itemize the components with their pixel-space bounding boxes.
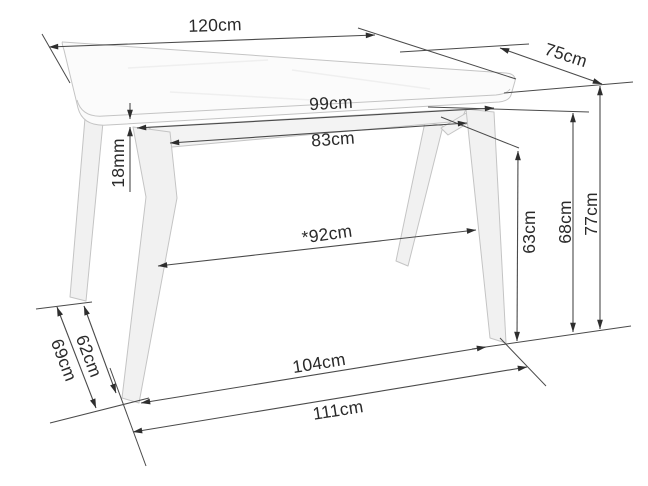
table-leg-rear-left — [70, 118, 103, 301]
dim-label-120cm: 120cm — [188, 14, 242, 36]
dim-label-104cm: 104cm — [291, 349, 347, 377]
ext-rear-left-foot — [36, 302, 92, 309]
dim-line-111 — [133, 367, 527, 432]
dim-label-63cm: 63cm — [519, 210, 539, 254]
ext-floor-left — [50, 398, 149, 423]
dim-label-68cm: 68cm — [555, 200, 575, 244]
ext-top-surface-right — [504, 82, 633, 93]
dim-label-18mm: 18mm — [108, 138, 128, 187]
dim-line-63 — [517, 151, 518, 341]
ext-leg-axis-right — [500, 338, 546, 386]
dim-label-99cm: 99cm — [309, 92, 354, 114]
dim-label-77cm: 77cm — [581, 192, 601, 236]
table-leg-rear-right — [396, 122, 443, 266]
dim-label-75cm: 75cm — [542, 39, 590, 71]
dim-label-83cm: 83cm — [311, 128, 356, 151]
dim-line-top-length — [49, 35, 375, 47]
table-drawing — [62, 42, 515, 403]
diagram-svg: 120cm 75cm 99cm 83cm 18mm *92cm 63cm 68c… — [0, 0, 648, 486]
dim-label-111cm: 111cm — [311, 396, 364, 424]
dim-label-92cm: *92cm — [301, 221, 354, 248]
table-dimension-diagram: 120cm 75cm 99cm 83cm 18mm *92cm 63cm 68c… — [0, 0, 648, 486]
table-leg-front-right — [466, 109, 506, 343]
